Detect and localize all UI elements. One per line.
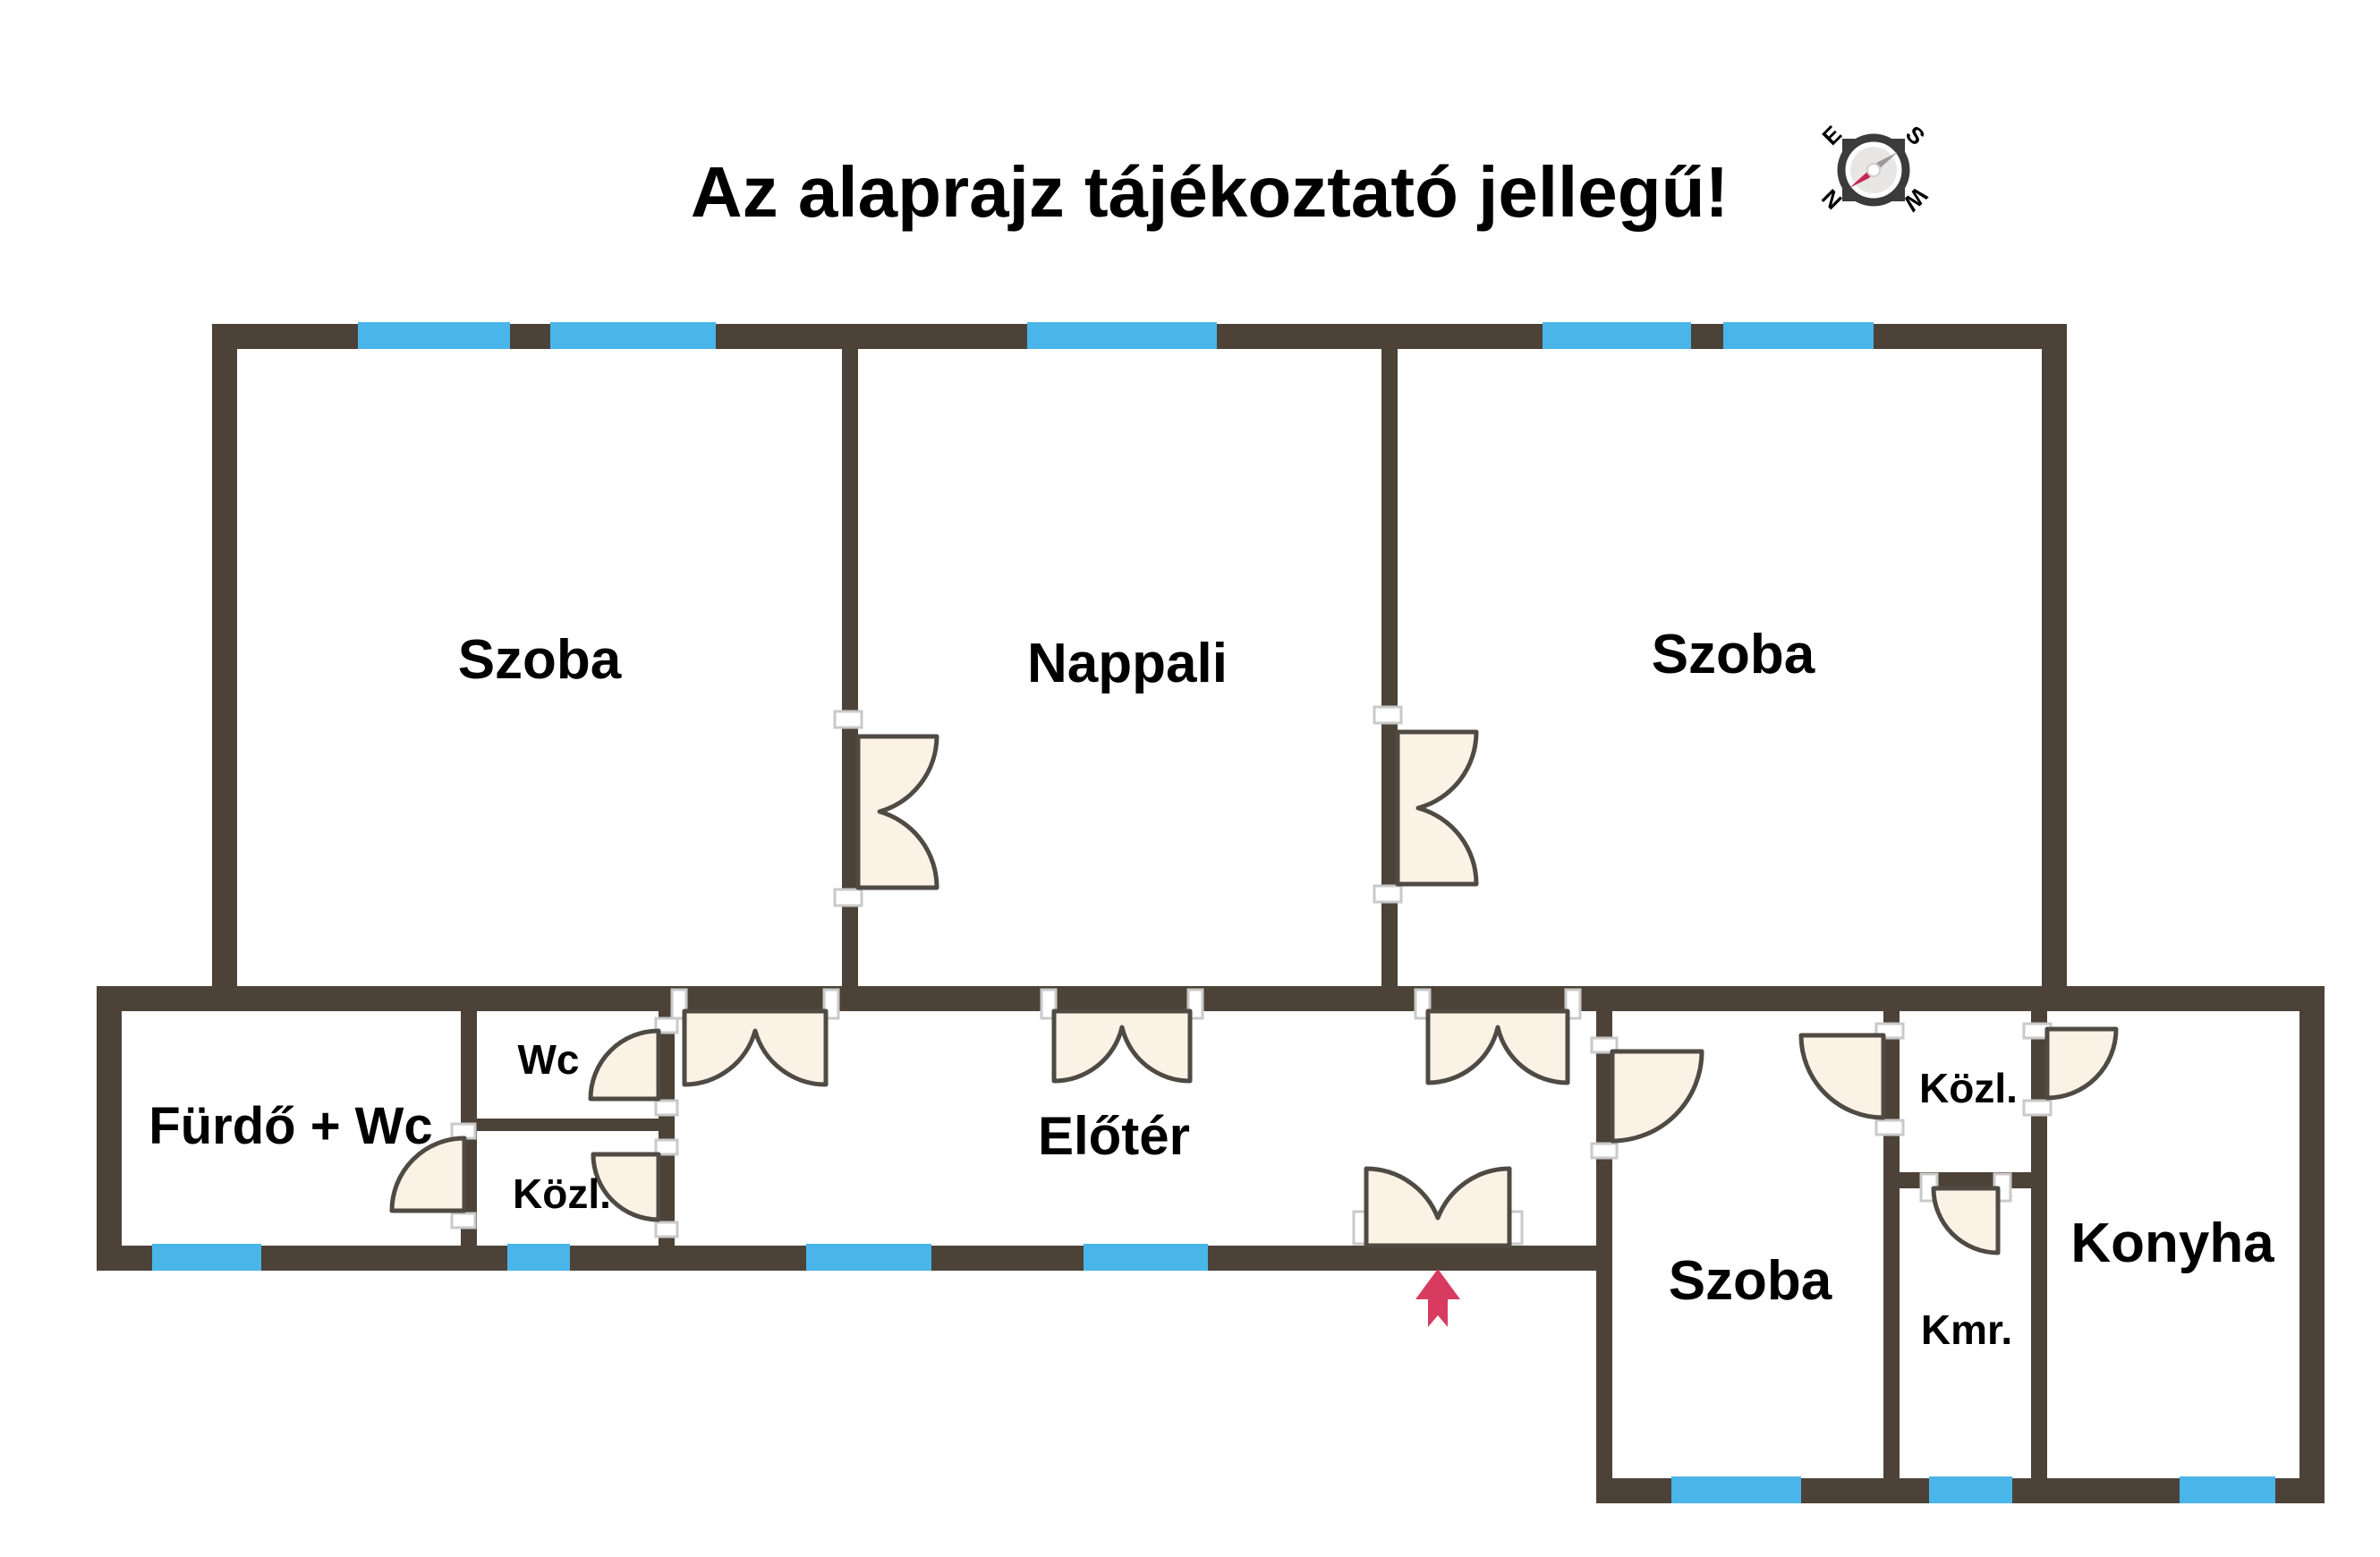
entrance-double-door bbox=[1366, 1169, 1509, 1246]
door-jambs bbox=[452, 707, 2051, 1244]
room-label-szoba-1: Szoba bbox=[458, 629, 622, 691]
window bbox=[1671, 1476, 1801, 1503]
window bbox=[2180, 1476, 2275, 1503]
compass-icon: E S W N bbox=[1816, 121, 1933, 217]
window bbox=[507, 1244, 570, 1271]
wall bbox=[1596, 986, 1612, 1503]
floor-plan-page: Az alaprajz tájékoztató jellegű! E S W N bbox=[0, 0, 2380, 1557]
door-jamb bbox=[1374, 707, 1401, 723]
double-door-nappali-szoba2 bbox=[1398, 732, 1476, 884]
room-label-eloter: Előtér bbox=[1038, 1106, 1190, 1166]
wall bbox=[212, 324, 237, 1011]
window bbox=[1723, 322, 1874, 349]
room-label-nappali: Nappali bbox=[1027, 633, 1228, 694]
floor-plan: Az alaprajz tájékoztató jellegű! E S W N bbox=[0, 0, 2380, 1557]
window bbox=[358, 322, 510, 349]
room-label-szoba-3: Szoba bbox=[1669, 1250, 1832, 1312]
wall bbox=[659, 1011, 675, 1246]
wall bbox=[2031, 986, 2047, 1478]
double-door-szoba1-nappali bbox=[858, 736, 937, 888]
window bbox=[1084, 1244, 1208, 1271]
door-jamb bbox=[656, 1222, 677, 1237]
room-label-konyha: Konyha bbox=[2070, 1212, 2274, 1274]
window bbox=[1027, 322, 1217, 349]
room-label-kmr: Kmr. bbox=[1921, 1306, 2012, 1353]
double-door-nappali-eloter bbox=[1054, 1011, 1190, 1081]
window bbox=[1929, 1476, 2012, 1503]
wall bbox=[97, 986, 122, 1271]
door-szoba-br-from-kozl bbox=[1801, 1035, 1883, 1118]
wall bbox=[1883, 986, 1900, 1478]
room-label-wc: Wc bbox=[518, 1036, 580, 1083]
door-wc bbox=[591, 1031, 659, 1099]
window bbox=[806, 1244, 931, 1271]
window bbox=[152, 1244, 261, 1271]
door-jamb bbox=[452, 1213, 475, 1228]
door-szoba-br-from-eloter bbox=[1612, 1051, 1702, 1141]
door-jamb bbox=[2024, 1101, 2051, 1115]
wall bbox=[477, 1119, 659, 1131]
compass-hub bbox=[1867, 164, 1880, 176]
wall bbox=[2042, 324, 2067, 1011]
door-jamb bbox=[1374, 886, 1401, 902]
door-jamb bbox=[835, 711, 862, 727]
double-door-szoba2-eloter bbox=[1428, 1011, 1568, 1083]
door-jamb bbox=[656, 1101, 677, 1115]
room-label-kozl-left: Közl. bbox=[513, 1170, 611, 1217]
room-label-szoba-2: Szoba bbox=[1652, 624, 1815, 685]
room-label-furdo-wc: Fürdő + Wc bbox=[149, 1097, 432, 1155]
door-kmr bbox=[1934, 1188, 1998, 1253]
window bbox=[550, 322, 716, 349]
door-jamb bbox=[1876, 1120, 1903, 1135]
door-jamb bbox=[835, 889, 862, 906]
door-konyha bbox=[2047, 1029, 2116, 1098]
wall bbox=[2299, 986, 2325, 1503]
page-title: Az alaprajz tájékoztató jellegű! bbox=[691, 152, 1729, 232]
room-label-kozl-right: Közl. bbox=[1919, 1065, 2018, 1111]
window bbox=[1543, 322, 1691, 349]
double-door-szoba1-eloter bbox=[684, 1011, 826, 1085]
wall bbox=[97, 986, 2325, 1011]
entrance-arrow-icon bbox=[1415, 1269, 1460, 1327]
door-jamb bbox=[1592, 1144, 1617, 1158]
